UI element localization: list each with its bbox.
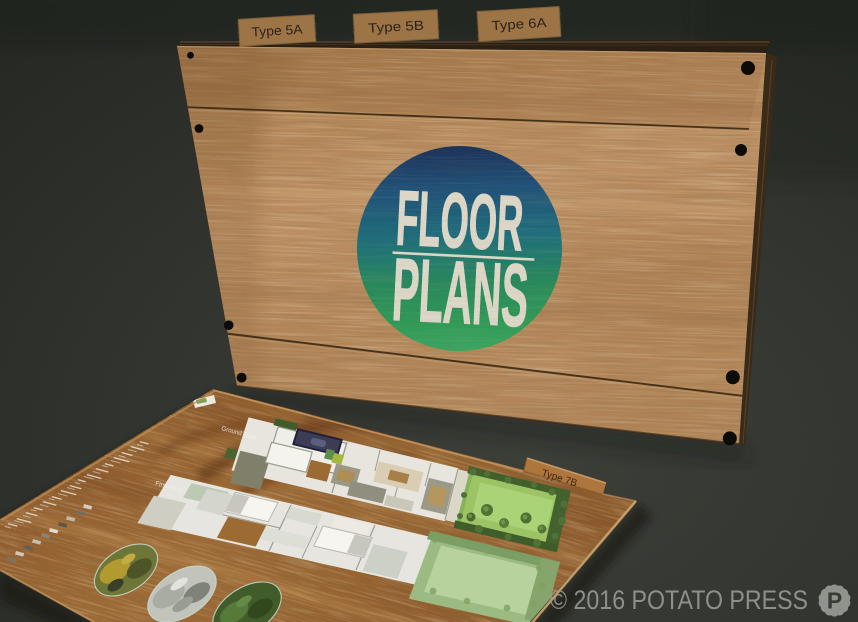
svg-text:P: P [827, 588, 842, 614]
svg-text:© 2016 POTATO PRESS: © 2016 POTATO PRESS [550, 585, 808, 615]
